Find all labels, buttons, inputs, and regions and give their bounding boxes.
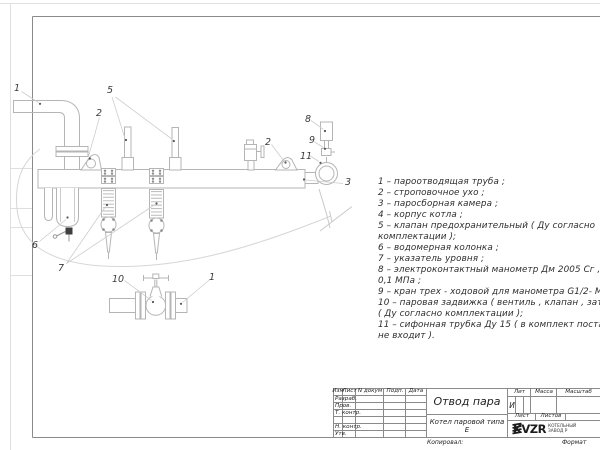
left-margin-cells [11, 169, 33, 276]
drawing-sheet: 1 5 2 6 7 10 1 2 8 9 11 3 1 – пароотводя… [0, 0, 600, 450]
callout-1-top: 1 [14, 83, 20, 94]
parts-list-line: 1 – пароотводящая труба ; [378, 177, 600, 188]
tb-header-doc: N докум [356, 388, 384, 395]
level-gauge-right [149, 190, 164, 261]
product-name: Котел паровой типа Е [427, 414, 507, 437]
parts-list-line: 4 – корпус котла ; [378, 210, 600, 221]
tb-scale-label: Масштаб [557, 389, 600, 396]
steam-chamber [38, 170, 318, 189]
parts-list-line: 7 – указатель уровня ; [378, 254, 600, 265]
parts-list-line: 2 – строповочное ухо ; [378, 188, 600, 199]
manometer [321, 122, 333, 141]
tb-header-sign: Подп. [384, 388, 406, 395]
tb-header-date: Дата [406, 388, 426, 395]
parts-list-line: 11 – сифонная трубка Ду 15 ( в комплект … [378, 320, 600, 331]
parts-list-line: 0,1 МПа ; [378, 276, 600, 287]
parts-list-line: 8 – электроконтактный манометр Дм 2005 С… [378, 265, 600, 276]
callout-10: 10 [112, 274, 124, 285]
parts-list-line: 9 – кран трех - ходовой для манометра G1… [378, 287, 600, 298]
drain-valve [245, 140, 265, 170]
leader-dots [39, 103, 326, 305]
tb-row-prov: Пров. [335, 403, 380, 410]
tb-header-list: Лист [343, 388, 356, 395]
company-logo: KVZR КОТЕЛЬНЫЙ ЗАВОД Р [511, 422, 600, 436]
level-gauge-left [101, 189, 116, 260]
tb-lit-value: И [508, 397, 516, 413]
tb-mass-label: Масса [531, 389, 557, 396]
parts-list: 1 – пароотводящая труба ; 2 – строповочн… [378, 177, 600, 342]
tb-sheets-label: Листов [536, 413, 566, 420]
document-title: Отвод пара [427, 388, 507, 414]
parts-list-line: 6 – водомерная колонка ; [378, 243, 600, 254]
callout-5: 5 [107, 85, 113, 96]
callout-3: 3 [345, 177, 351, 188]
parts-list-line: 5 – клапан предохранительный ( Ду соглас… [378, 221, 600, 232]
callout-1-bottom: 1 [209, 272, 215, 283]
company-caption: КОТЕЛЬНЫЙ ЗАВОД Р [548, 424, 576, 434]
parts-list-line: ( Ду согласно комплектации ); [378, 309, 600, 320]
tb-sheet-label: Лист [508, 413, 536, 420]
callout-9: 9 [309, 135, 315, 146]
steam-outlet-pipe [14, 100, 89, 170]
callout-6: 6 [32, 240, 38, 251]
company-caption-line2: ЗАВОД Р [548, 429, 576, 434]
callout-11: 11 [300, 151, 312, 162]
callout-8: 8 [305, 114, 311, 125]
parts-list-line: комплектации ); [378, 232, 600, 243]
callout-2-left: 2 [96, 108, 102, 119]
tb-row-razrab: Разраб. [335, 396, 380, 403]
tb-row-tkontr: Т. контр. [335, 410, 380, 417]
callout-7: 7 [58, 263, 64, 274]
safety-valve-right [170, 128, 182, 171]
tb-lit-label: Лит [508, 389, 531, 396]
footer-format: Формат [562, 439, 600, 446]
parts-list-line: не входит ). [378, 331, 600, 342]
parts-list-line: 10 – паровая задвижка ( вентиль , клапан… [378, 298, 600, 309]
three-way-cock [322, 141, 336, 163]
lifting-lug-right [276, 158, 298, 170]
tb-row-utv: Утв. [335, 431, 380, 438]
parts-list-line: 3 – паросборная камера ; [378, 199, 600, 210]
tb-row-nkontr: Н. контр. [335, 424, 380, 431]
footer-copied: Копировал: [427, 439, 497, 446]
callout-2-right: 2 [265, 137, 271, 148]
